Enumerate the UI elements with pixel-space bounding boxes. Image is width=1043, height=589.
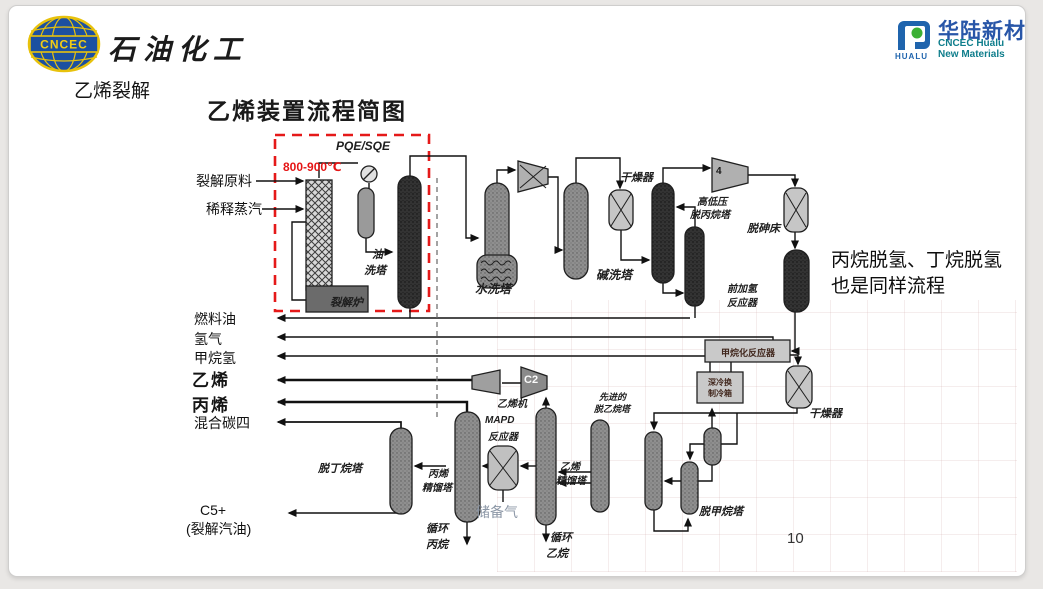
label-compressor-c2: C2 — [524, 374, 538, 386]
vessel-reserve-drum — [704, 428, 721, 465]
process-flow-diagram — [0, 0, 1043, 589]
label-ethylene-tower-l1: 乙烯 — [560, 458, 580, 473]
label-front-hydro-l2: 反应器 — [727, 294, 757, 309]
label-recycle-ethane-l2: 乙烷 — [546, 545, 568, 561]
vessel-water-wash-tower — [477, 183, 517, 288]
vessel-mapd-reactor — [488, 446, 518, 490]
vessel-oil-wash-tower — [398, 176, 421, 308]
label-demethanizer: 脱甲烷塔 — [699, 503, 743, 519]
vessel-front-hydrogenation-reactor — [784, 250, 809, 312]
vessel-dryer-2 — [786, 366, 812, 408]
vessel-caustic-wash-tower — [564, 183, 588, 279]
pqe-sqe-label: PQE/SQE — [336, 139, 390, 153]
vessel-arsine-removal-bed — [784, 188, 808, 232]
label-mapd-l1: MAPD — [485, 415, 514, 426]
stream-methane-hydrogen: 甲烷氢 — [194, 348, 236, 368]
label-cold-box-l2: 制冷箱 — [699, 388, 741, 399]
vessel-debutanizer — [390, 428, 412, 514]
compressor-1-icon — [518, 161, 548, 192]
label-recycle-propane-l2: 丙烷 — [426, 536, 448, 552]
label-propylene-tower-l1: 丙烯 — [428, 465, 448, 480]
label-ethylene-tower-l2: 精馏塔 — [556, 472, 586, 487]
stream-c5-line2: (裂解汽油) — [186, 519, 251, 539]
vessel-depropanizer-1 — [652, 183, 674, 283]
label-oil-wash-l1: 油 — [372, 246, 383, 262]
label-propylene-tower-l2: 精馏塔 — [422, 479, 452, 494]
label-oil-wash-l2: 洗塔 — [364, 262, 386, 278]
label-deethanizer-l2: 脱乙烷塔 — [594, 402, 630, 415]
label-front-hydro-l1: 前加氢 — [727, 280, 757, 295]
label-water-wash-tower: 水洗塔 — [475, 280, 511, 297]
label-reserve-gas: 储备气 — [476, 502, 518, 522]
label-compressor-4: 4 — [716, 166, 722, 177]
stream-mixed-c4: 混合碳四 — [194, 413, 250, 433]
screenshot: CNCEC 石油化工 乙烯裂解 乙烯装置流程简图 HUALU 华陆新材 CNCE… — [0, 0, 1043, 589]
temperature-annotation: 800-900℃ — [283, 160, 342, 174]
label-arsine-bed: 脱砷床 — [747, 220, 780, 236]
label-recycle-ethane-l1: 循环 — [550, 529, 572, 545]
stream-hydrogen: 氢气 — [194, 329, 222, 349]
label-recycle-propane-l1: 循环 — [426, 520, 448, 536]
compressor-ethylene-icon — [472, 370, 500, 394]
label-caustic-wash-tower: 碱洗塔 — [596, 266, 632, 283]
label-dryer-1: 干燥器 — [620, 169, 653, 185]
vessel-ethylene-tower — [536, 408, 556, 525]
vessel-demethanizer — [681, 462, 698, 514]
vessel-deethanizer — [591, 420, 609, 512]
stream-ethylene: 乙烯 — [192, 366, 230, 391]
label-mapd-l2: 反应器 — [488, 428, 518, 443]
label-ethylene-compressor: 乙烯机 — [497, 395, 527, 410]
label-methanation-reactor: 甲烷化反应器 — [706, 346, 790, 359]
stream-dilution-steam: 稀释蒸汽 — [206, 199, 262, 219]
vessel-dryer-1 — [609, 190, 633, 230]
stream-cracking-feed: 裂解原料 — [196, 171, 252, 191]
stream-c5-line1: C5+ — [200, 502, 226, 518]
label-dryer-2: 干燥器 — [809, 405, 842, 421]
label-cold-box-l1: 深冷换 — [699, 377, 741, 388]
vessel-column-c — [645, 432, 662, 510]
label-depropanizer-l2: 脱丙烷塔 — [690, 206, 730, 221]
stream-fuel-oil: 燃料油 — [194, 309, 236, 329]
label-cracking-furnace: 裂解炉 — [330, 294, 363, 310]
vessel-quench-exchanger — [358, 166, 377, 238]
vessel-depropanizer-2 — [685, 227, 704, 306]
label-debutanizer: 脱丁烷塔 — [318, 460, 362, 476]
